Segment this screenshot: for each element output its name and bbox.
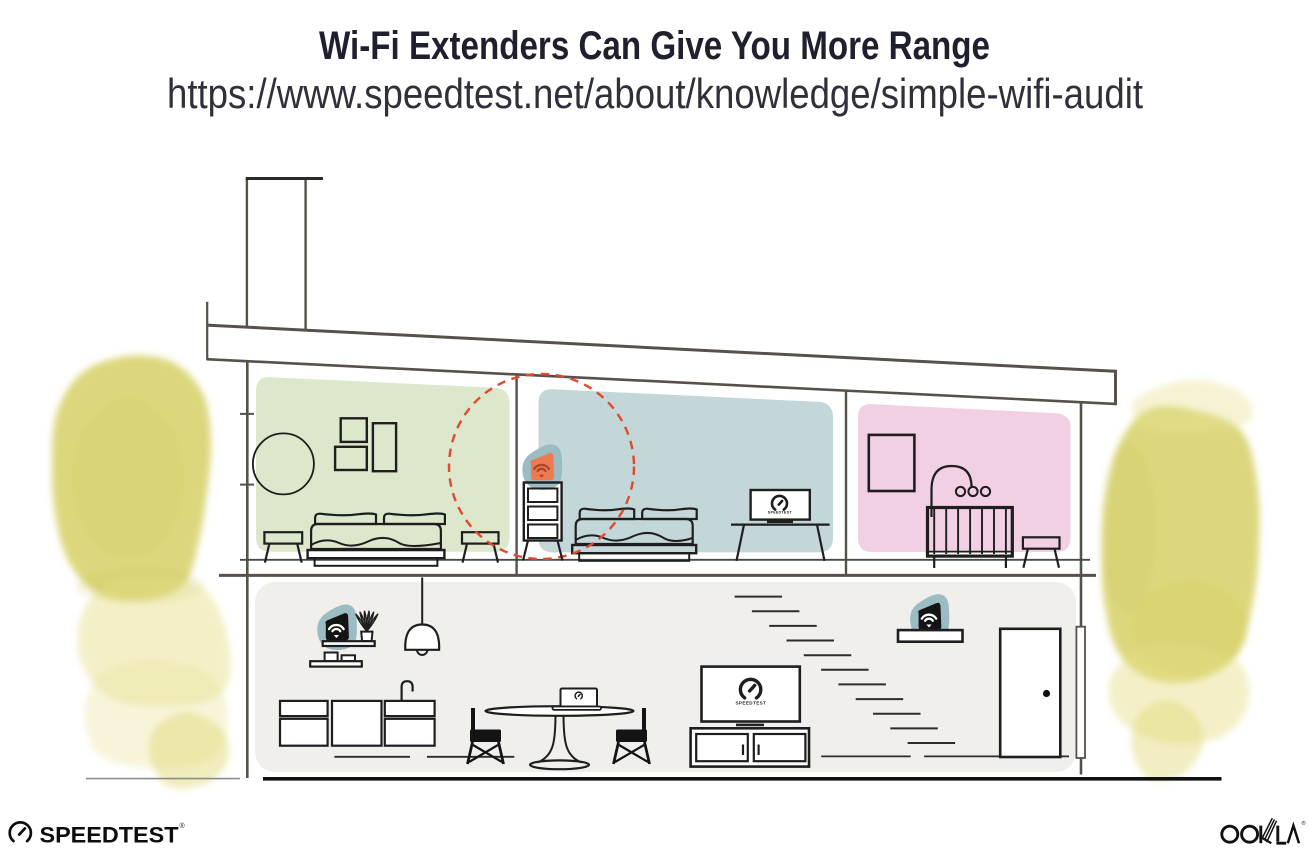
svg-text:SPEEDTEST: SPEEDTEST — [768, 511, 793, 515]
svg-text:Wi-Fi Extenders Can Give You M: Wi-Fi Extenders Can Give You More Range — [319, 24, 990, 68]
svg-text:®: ® — [1302, 820, 1306, 827]
svg-text:SPEEDTEST: SPEEDTEST — [735, 701, 766, 706]
svg-text:https://www.speedtest.net/abou: https://www.speedtest.net/about/knowledg… — [167, 70, 1143, 117]
svg-text:®: ® — [180, 822, 186, 830]
svg-text:SPEEDTEST: SPEEDTEST — [40, 822, 180, 847]
